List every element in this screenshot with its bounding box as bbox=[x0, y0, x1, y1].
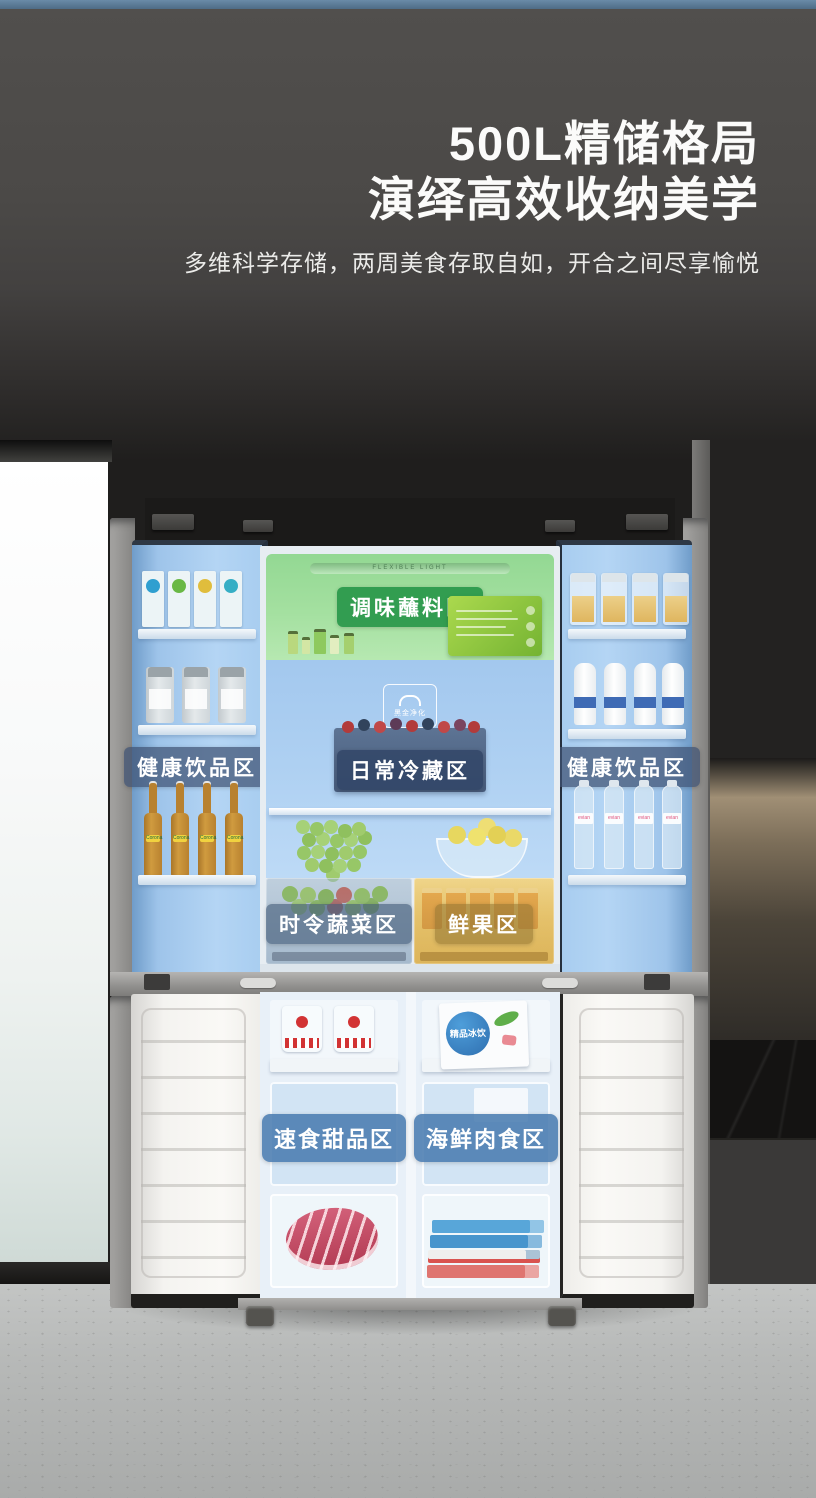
top-accent-strip bbox=[0, 0, 816, 9]
drink-pack bbox=[142, 571, 164, 627]
hinge-nub bbox=[144, 974, 170, 990]
beer-bottle: Corona bbox=[144, 783, 162, 877]
drawer-rail bbox=[272, 952, 406, 961]
dessert-drawer: 速食甜品区 bbox=[270, 1082, 398, 1186]
frozen-food-box bbox=[432, 1220, 544, 1233]
drawer-rail bbox=[420, 952, 548, 961]
water-bottle: evian bbox=[634, 785, 654, 869]
freezer-cavity: 速食甜品区 精品冰饮 海鲜肉食区 bbox=[260, 992, 560, 1300]
door-hinge bbox=[243, 520, 273, 532]
water-label: evian bbox=[605, 813, 623, 824]
freezer-left-compartment: 速食甜品区 bbox=[266, 998, 402, 1294]
frozen-food-box bbox=[427, 1265, 539, 1278]
water-label: evian bbox=[663, 813, 681, 824]
chef-hat-icon bbox=[399, 695, 421, 706]
fruit-bowl bbox=[436, 838, 528, 878]
door-shelf-bar bbox=[138, 875, 256, 885]
freezer-left-door bbox=[131, 994, 269, 1308]
promo-canvas: 500L精储格局 演绎高效收纳美学 多维科学存储，两周美食存取自如，开合之间尽享… bbox=[0, 0, 816, 1498]
ice-cream-tub bbox=[282, 1006, 322, 1052]
frozen-box-drawer bbox=[422, 1194, 550, 1288]
shrimp-decoration bbox=[502, 1034, 517, 1045]
zone-badge-dessert: 速食甜品区 bbox=[262, 1114, 406, 1162]
kitchen-base-cabinet bbox=[710, 1138, 816, 1290]
zone-badge-right-door: 健康饮品区 bbox=[554, 747, 700, 787]
beer-bottle: Corona bbox=[171, 783, 189, 877]
condiment-bottles bbox=[288, 626, 368, 654]
zone-badge-daily: 日常冷藏区 bbox=[337, 750, 483, 790]
milk-bottle bbox=[662, 663, 684, 725]
glass-shelf bbox=[269, 808, 551, 815]
frozen-food-box bbox=[428, 1250, 540, 1263]
fridge-wheel bbox=[548, 1306, 576, 1326]
hinge-pill bbox=[240, 978, 276, 988]
leaf-decoration bbox=[492, 1008, 520, 1029]
preserve-jar bbox=[570, 573, 596, 625]
preserve-jar bbox=[601, 573, 627, 625]
window-frame-top bbox=[0, 440, 112, 462]
hinge-pill bbox=[542, 978, 578, 988]
window bbox=[0, 462, 108, 1262]
frozen-food-box bbox=[430, 1235, 542, 1248]
water-label: evian bbox=[635, 813, 653, 824]
seafood-drawer: 海鲜肉食区 bbox=[422, 1082, 550, 1186]
door-shelf-bar bbox=[138, 629, 256, 639]
beer-label: Corona bbox=[173, 835, 187, 842]
info-card bbox=[448, 596, 542, 656]
fridge-base bbox=[238, 1298, 582, 1310]
ice-drink-card-title: 精品冰饮 bbox=[445, 1011, 491, 1057]
freezer-door-panel bbox=[141, 1008, 246, 1278]
beer-bottle: Corona bbox=[198, 783, 216, 877]
door-hinge bbox=[152, 514, 194, 530]
fruit-drawer: 鲜果区 bbox=[414, 878, 554, 964]
hinge-nub bbox=[644, 974, 670, 990]
drink-pack bbox=[168, 571, 190, 627]
door-shelf-bar bbox=[568, 629, 686, 639]
grapes bbox=[296, 820, 310, 834]
flexible-light-bar: FLEXIBLE LIGHT bbox=[310, 563, 510, 574]
fridge-wheel bbox=[246, 1306, 274, 1326]
door-shelf-bar bbox=[138, 725, 256, 735]
ice-cream-tub bbox=[334, 1006, 374, 1052]
marble-backsplash bbox=[710, 1040, 816, 1138]
drink-pack bbox=[220, 571, 242, 627]
milk-bottle bbox=[604, 663, 626, 725]
door-hinge bbox=[545, 520, 575, 532]
meat-drawer bbox=[270, 1194, 398, 1288]
berries bbox=[342, 721, 354, 733]
window-sill bbox=[0, 1262, 114, 1286]
beer-label: Corona bbox=[200, 835, 214, 842]
ice-drink-card: 精品冰饮 bbox=[439, 1000, 529, 1069]
milk-bottle bbox=[574, 663, 596, 725]
beer-bottle: Corona bbox=[225, 783, 243, 877]
title-line-1: 500L精储格局 bbox=[184, 116, 760, 172]
kitchen-under-cabinet-light bbox=[710, 758, 816, 1040]
fridge-right-door: 健康饮品区 evian evian evian evian bbox=[556, 540, 692, 977]
freezer-right-compartment: 精品冰饮 海鲜肉食区 bbox=[418, 998, 554, 1294]
drink-pack bbox=[194, 571, 216, 627]
jar bbox=[218, 667, 246, 723]
freezer-door-panel bbox=[579, 1008, 684, 1278]
milk-bottle bbox=[634, 663, 656, 725]
marbled-meat bbox=[283, 1203, 382, 1276]
freezer-right-door bbox=[556, 994, 694, 1308]
freezer-top-shelf bbox=[270, 1000, 398, 1072]
preserve-jar bbox=[663, 573, 689, 625]
title-line-2: 演绎高效收纳美学 bbox=[184, 172, 760, 228]
water-bottle: evian bbox=[574, 785, 594, 869]
beer-label: Corona bbox=[146, 835, 160, 842]
headline-block: 500L精储格局 演绎高效收纳美学 多维科学存储，两周美食存取自如，开合之间尽享… bbox=[184, 116, 760, 278]
jar bbox=[182, 667, 210, 723]
zone-badge-fruit: 鲜果区 bbox=[435, 904, 533, 944]
shelf-front-bar bbox=[270, 1059, 398, 1072]
water-bottle: evian bbox=[604, 785, 624, 869]
door-hinge bbox=[626, 514, 668, 530]
kitchen-upper-cabinet bbox=[710, 440, 816, 761]
door-shelf-bar bbox=[568, 875, 686, 885]
water-bottle: evian bbox=[662, 785, 682, 869]
beer-label: Corona bbox=[227, 835, 241, 842]
preserve-jar bbox=[632, 573, 658, 625]
freezer-top-shelf: 精品冰饮 bbox=[422, 1000, 550, 1072]
jar bbox=[146, 667, 174, 723]
purify-logo-text: 黑金净化 bbox=[394, 708, 426, 718]
door-shelf-bar bbox=[568, 729, 686, 739]
zone-badge-seafood: 海鲜肉食区 bbox=[414, 1114, 558, 1162]
condiment-zone: FLEXIBLE LIGHT 调味蘸料区 bbox=[266, 554, 554, 660]
purify-logo: 黑金净化 bbox=[383, 684, 437, 728]
vegetable-drawer: 时令蔬菜区 bbox=[266, 878, 412, 964]
fridge-left-door: 健康饮品区 Corona Corona Corona Corona bbox=[132, 540, 268, 977]
water-label: evian bbox=[575, 813, 593, 824]
subtitle: 多维科学存储，两周美食存取自如，开合之间尽享愉悦 bbox=[184, 244, 760, 278]
zone-badge-vegetable: 时令蔬菜区 bbox=[266, 904, 412, 944]
yellow-fruits bbox=[448, 826, 466, 844]
daily-cold-zone: 黑金净化 日常冷藏区 bbox=[266, 660, 554, 878]
zone-badge-left-door: 健康饮品区 bbox=[124, 747, 270, 787]
